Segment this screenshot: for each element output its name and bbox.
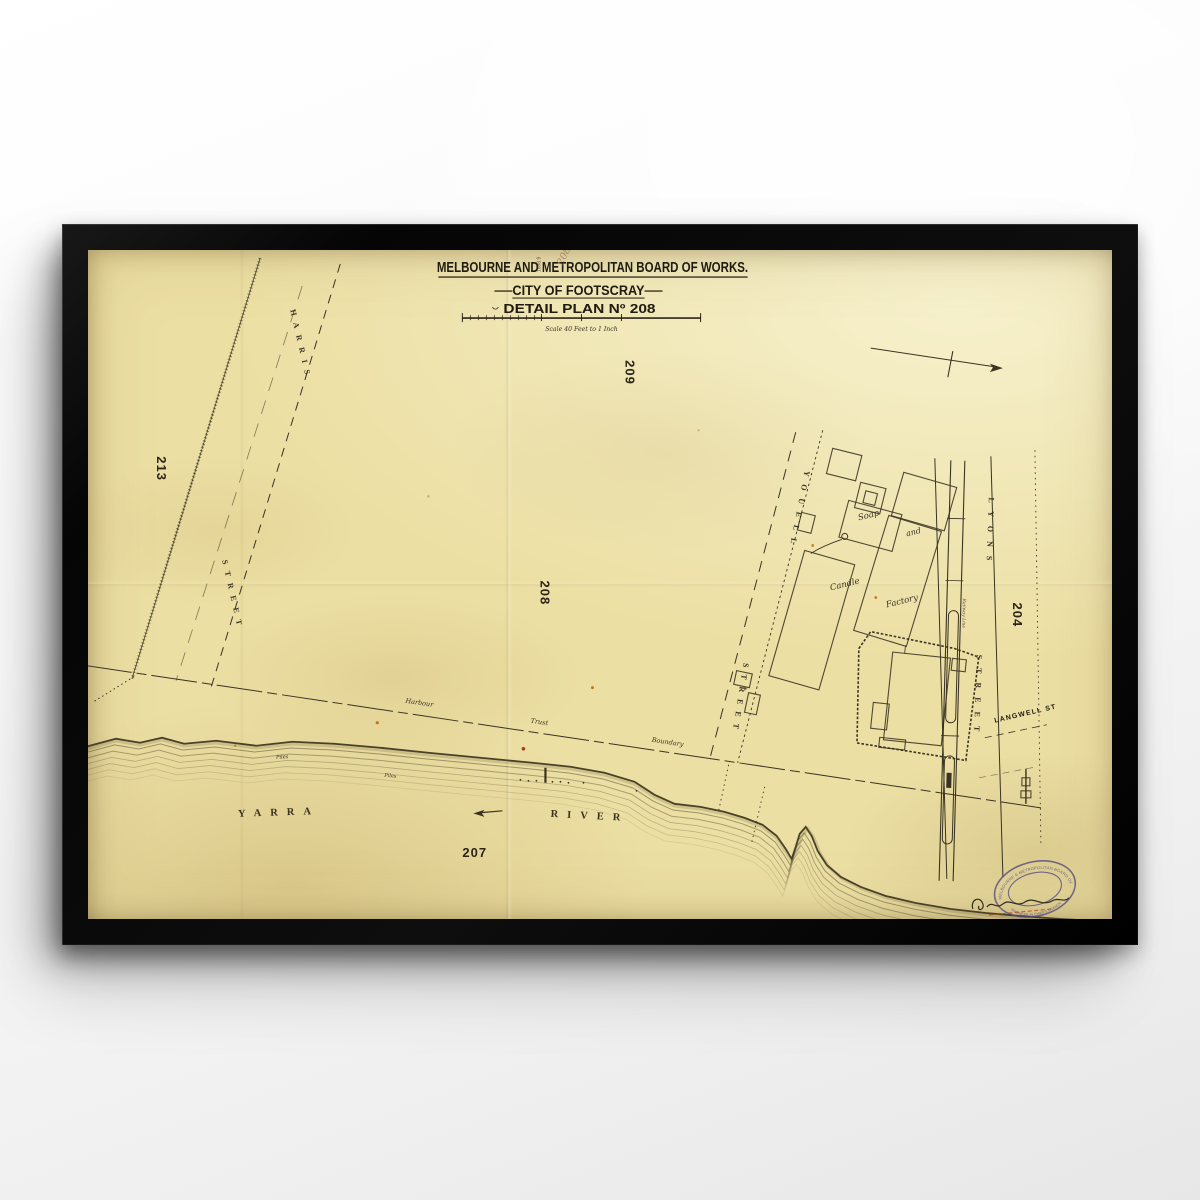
factory-label-candle: Candle — [829, 576, 861, 593]
youell-street-label-1: YOUELL — [787, 470, 811, 552]
harbour-trust-boundary: Harbour Trust Boundary — [88, 666, 1041, 808]
langwell-street: LANGWELL ST — [979, 704, 1057, 778]
map-paper: MELBOURNE AND METROPOLITAN BOARD OF WORK… — [88, 250, 1112, 919]
title-city: CITY OF FOOTSCRAY — [512, 283, 644, 298]
lyons-street: LYONS STREET Railway Line — [935, 450, 1041, 881]
river-labels: YARRA RIVER — [238, 806, 630, 824]
title-board: MELBOURNE AND METROPOLITAN BOARD OF WORK… — [437, 260, 748, 276]
scale-caption: Scale 40 Feet to 1 Inch — [545, 326, 618, 333]
plan-number-209: 209 — [623, 360, 638, 385]
title-plan-no: DETAIL PLAN Nº 208 — [503, 301, 655, 316]
works-complex — [848, 631, 980, 761]
factory-label-soap: Soap — [857, 508, 881, 523]
piles-label-2: Piles — [383, 773, 397, 780]
youell-street: YOUELL STREET — [711, 430, 823, 843]
boundary-word-3: Boundary — [650, 736, 684, 749]
lyons-street-label-2: STREET — [972, 655, 984, 741]
wall: MELBOURNE AND METROPOLITAN BOARD OF WORK… — [0, 0, 1200, 1200]
plan-number-208: 208 — [537, 580, 552, 605]
river-bank: Piles Piles — [88, 738, 1112, 919]
river-name-yarra: YARRA — [238, 806, 320, 820]
harris-street-label-2: STREET — [220, 559, 245, 633]
map-svg: MELBOURNE AND METROPOLITAN BOARD OF WORK… — [88, 250, 1112, 919]
langwell-street-label: LANGWELL ST — [994, 704, 1058, 725]
piles-label-1: Piles — [275, 754, 289, 761]
river-name-river: RIVER — [550, 809, 629, 824]
top-note: 1898.9 — [536, 257, 542, 273]
harris-street: HARRIS STREET — [92, 258, 340, 703]
north-arrow — [871, 348, 1003, 377]
scale-bar — [462, 313, 700, 322]
boundary-word-1: Harbour — [404, 697, 435, 709]
title-block: MELBOURNE AND METROPOLITAN BOARD OF WORK… — [437, 260, 748, 333]
lyons-street-label-1: LYONS — [984, 497, 996, 569]
flow-arrow — [473, 810, 502, 817]
signal-post-icon — [1021, 769, 1031, 804]
plan-number-213: 213 — [154, 456, 169, 481]
plan-number-207: 207 — [462, 845, 487, 860]
picture-frame: MELBOURNE AND METROPOLITAN BOARD OF WORK… — [62, 224, 1138, 945]
railway-note: Railway Line — [960, 597, 967, 628]
factory-label-and: and — [905, 526, 922, 538]
plan-number-204: 204 — [1010, 603, 1025, 628]
harris-street-label-1: HARRIS — [288, 309, 313, 382]
boundary-word-2: Trust — [530, 717, 549, 728]
foxing-specks — [234, 429, 877, 750]
title-tick — [492, 307, 498, 309]
factory-label-factory: Factory — [884, 593, 919, 611]
bank-contours — [88, 744, 1112, 919]
